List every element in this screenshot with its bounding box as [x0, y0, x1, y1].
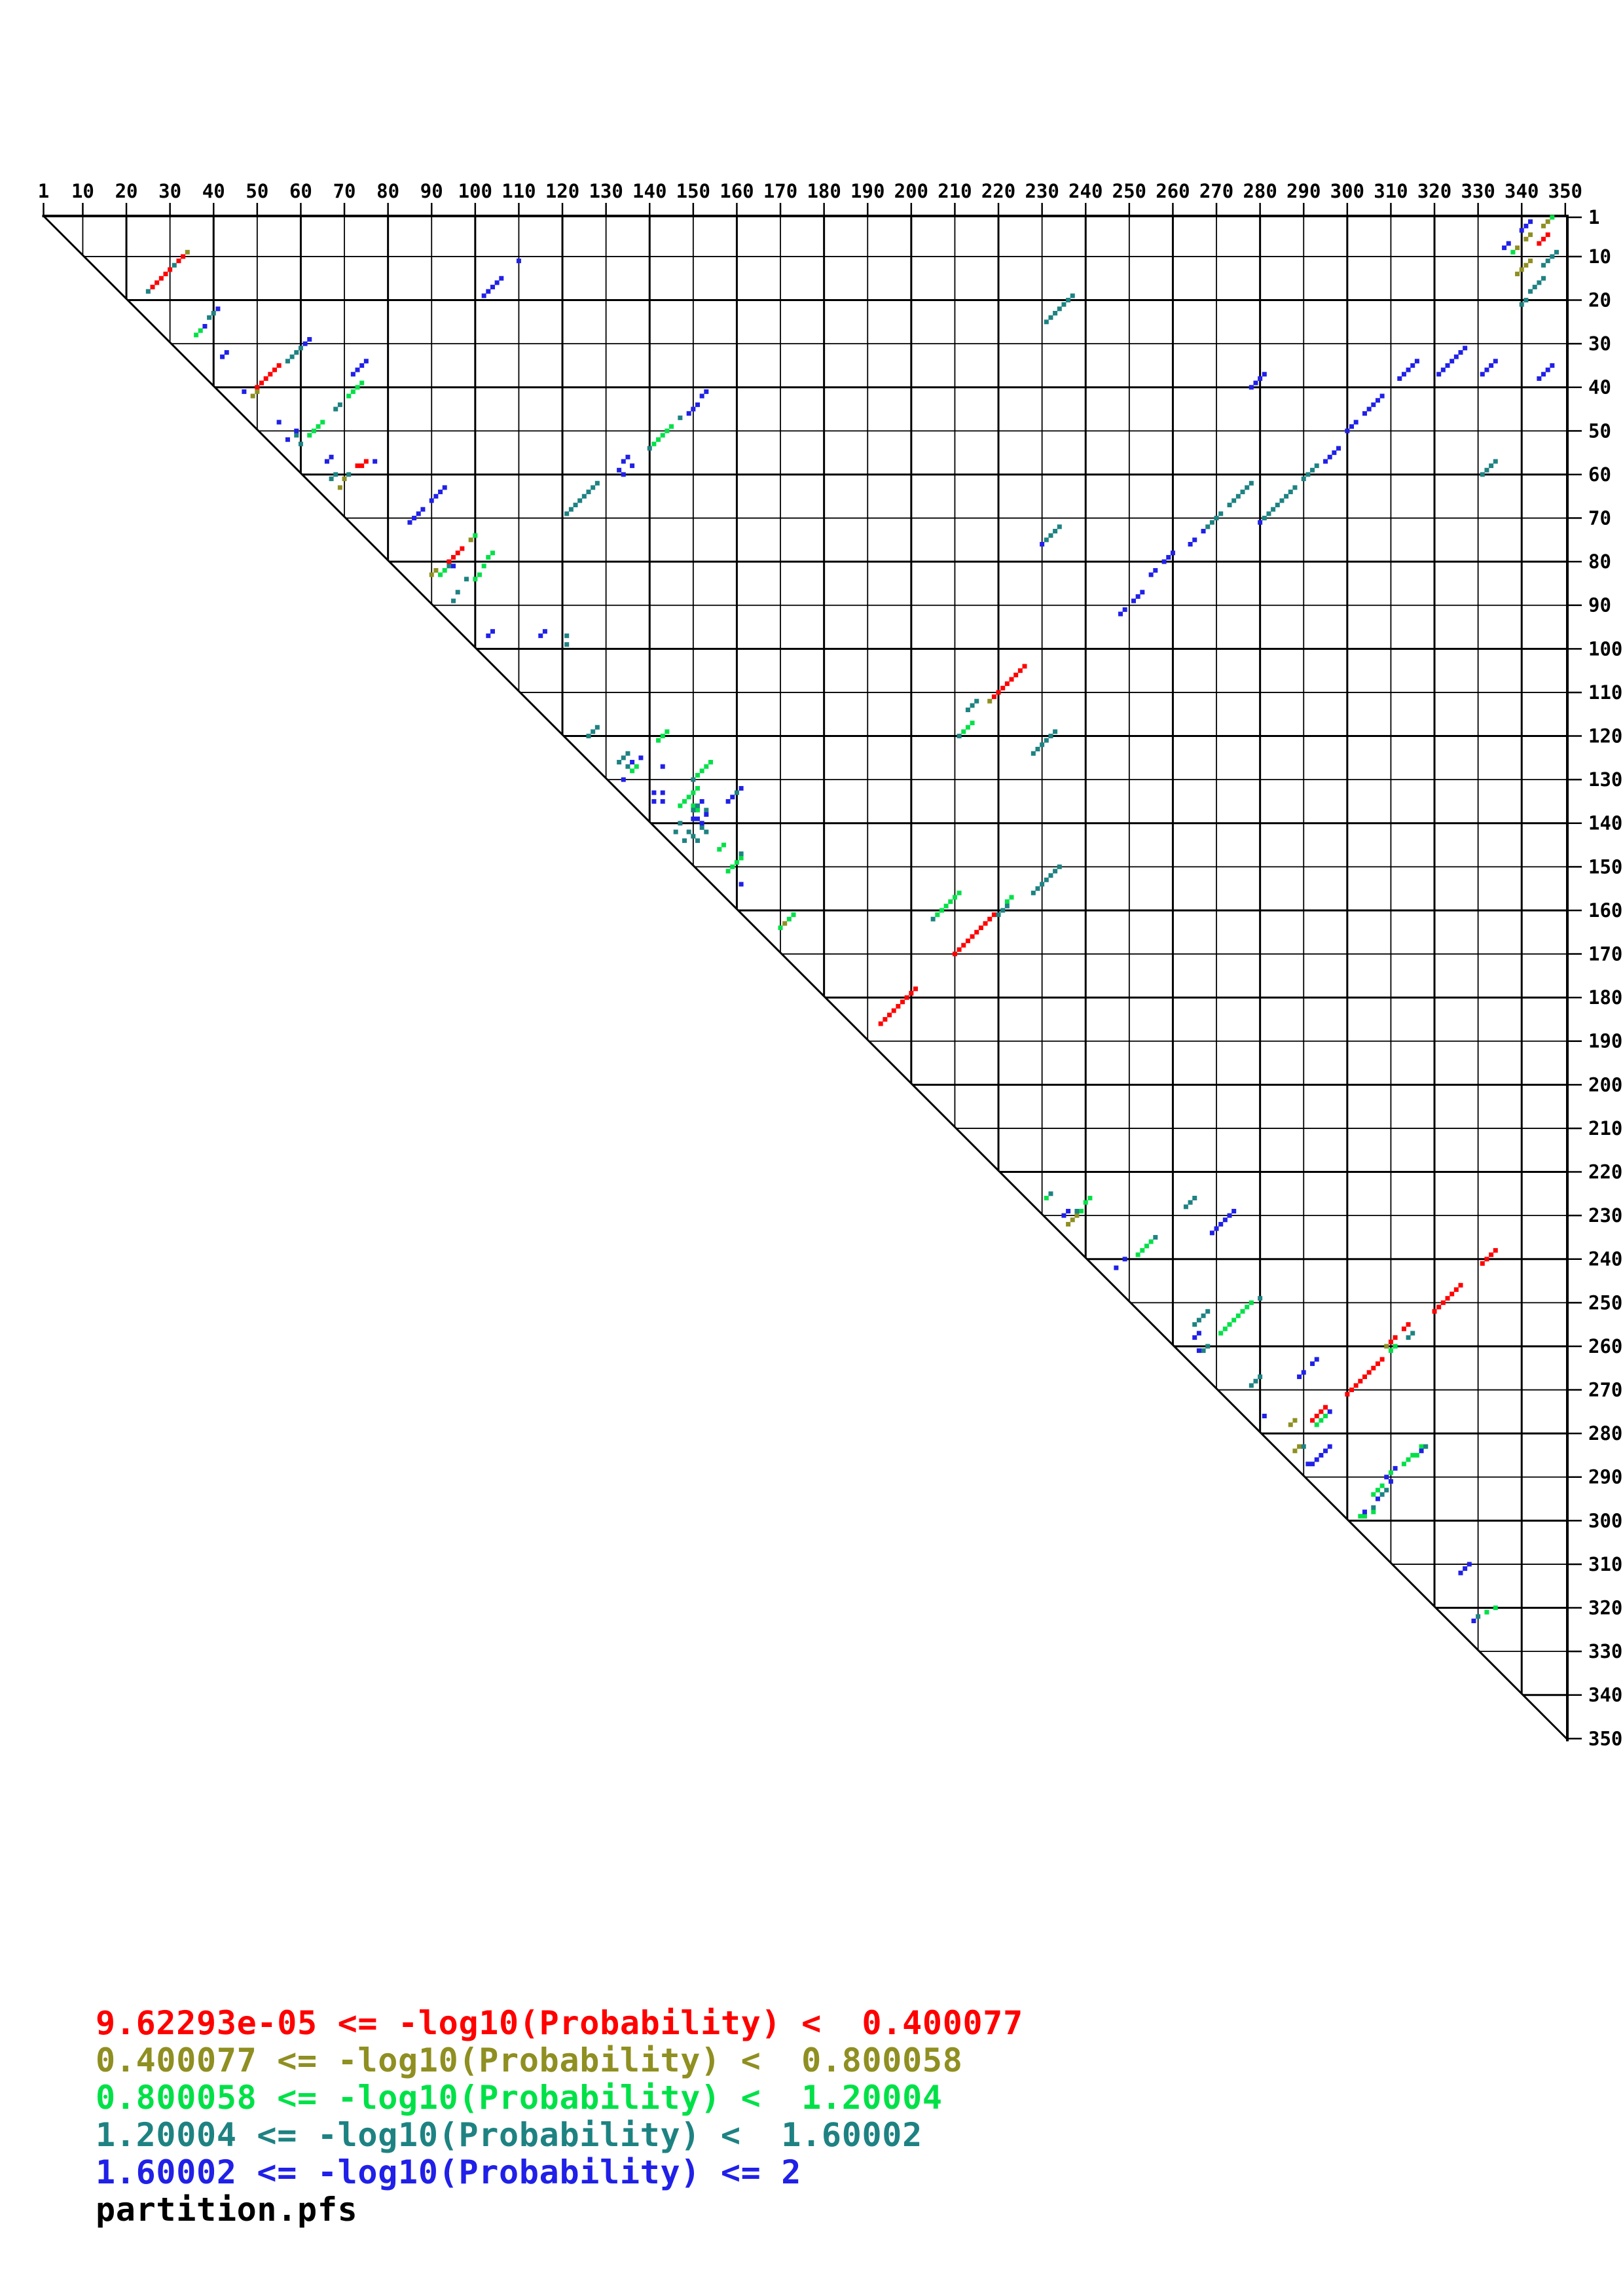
dot [1459, 350, 1463, 355]
dot [1489, 463, 1493, 468]
dot [1188, 542, 1193, 547]
dot [1201, 1348, 1206, 1353]
dot [1302, 476, 1306, 481]
dot [1376, 1361, 1380, 1366]
dot [909, 991, 913, 996]
dot [1484, 1257, 1489, 1261]
y-tick-label: 80 [1588, 550, 1611, 573]
dot [1040, 742, 1044, 747]
x-tick-label: 260 [1156, 180, 1190, 202]
dot [996, 912, 1001, 917]
dot [651, 799, 656, 804]
y-tick-label: 50 [1588, 420, 1611, 442]
dot [1415, 359, 1419, 363]
dot [665, 429, 669, 433]
dot [1061, 1213, 1066, 1218]
dot [966, 725, 970, 730]
dot [1541, 372, 1546, 376]
dot [1035, 747, 1040, 751]
dot [1419, 1448, 1424, 1453]
y-tick-label: 190 [1588, 1030, 1622, 1052]
dot [647, 446, 652, 450]
dot [1371, 1510, 1376, 1515]
dot [1546, 259, 1550, 263]
dot [1305, 472, 1310, 476]
dot [695, 804, 700, 808]
dot [730, 865, 735, 869]
dot [151, 285, 155, 289]
dot [1454, 1287, 1459, 1292]
x-tick-label: 310 [1374, 180, 1408, 202]
dot [1023, 664, 1027, 668]
dot [1048, 1191, 1053, 1196]
dot [1476, 1614, 1480, 1619]
y-tick-label: 40 [1588, 376, 1611, 399]
dot [1228, 1213, 1232, 1218]
x-tick-label: 40 [202, 180, 225, 202]
dot [1070, 1217, 1075, 1222]
dot [1533, 285, 1537, 289]
dot [1389, 1471, 1393, 1475]
dot [1000, 908, 1005, 912]
dot [1436, 372, 1441, 376]
dot [1162, 560, 1167, 564]
dot [1484, 468, 1489, 473]
x-tick-label: 190 [850, 180, 884, 202]
dot [957, 891, 962, 895]
y-tick-label: 250 [1588, 1291, 1622, 1314]
dot [1528, 219, 1533, 224]
y-tick-label: 350 [1588, 1727, 1622, 1749]
dot [443, 485, 447, 490]
dot [1241, 1309, 1245, 1314]
grid-lines [82, 216, 1567, 1695]
dot [1402, 1327, 1406, 1331]
dot [1310, 1462, 1315, 1466]
dot [1376, 398, 1380, 403]
dot [1406, 368, 1411, 372]
dot [329, 455, 334, 459]
dot [420, 507, 425, 512]
dot [687, 795, 691, 799]
dot [1515, 245, 1520, 250]
x-tick-label: 120 [545, 180, 579, 202]
dot [1044, 738, 1049, 743]
dot [1367, 407, 1372, 412]
dot [1389, 1479, 1393, 1484]
dot [469, 537, 473, 542]
dot [1328, 455, 1332, 459]
filename-label: partition.pfs [96, 2191, 1023, 2229]
dot [1528, 259, 1533, 263]
dot [464, 577, 469, 581]
dot [325, 459, 329, 463]
dot [905, 996, 909, 1000]
dot [1010, 895, 1014, 899]
dot [1123, 1257, 1127, 1261]
dot [656, 437, 661, 442]
dot [1048, 734, 1053, 738]
dot [1554, 250, 1559, 255]
y-tick-label: 1 [1588, 206, 1599, 228]
dot [577, 498, 582, 503]
dot [407, 520, 412, 525]
dot [695, 786, 700, 791]
dot [1253, 1379, 1258, 1384]
dot [1149, 573, 1154, 577]
dot [294, 433, 299, 438]
dot [146, 289, 151, 294]
dot [591, 485, 595, 490]
dot [1253, 381, 1258, 386]
y-tick-label: 270 [1588, 1379, 1622, 1401]
y-tick-label: 310 [1588, 1553, 1622, 1575]
dot [717, 847, 721, 852]
dot [1537, 241, 1541, 245]
dot [1231, 1318, 1236, 1322]
dot [691, 817, 695, 821]
dot [695, 403, 700, 407]
dot [194, 332, 198, 337]
x-tick-label: 340 [1504, 180, 1539, 202]
dot [1223, 1327, 1228, 1331]
dot [682, 799, 687, 804]
dot [1136, 1253, 1140, 1257]
dot [277, 420, 282, 425]
dot [700, 825, 704, 830]
dot [1523, 298, 1528, 302]
y-tick-label: 30 [1588, 332, 1611, 355]
dot [1393, 1344, 1398, 1348]
dot [1231, 498, 1236, 503]
dot [1389, 1340, 1393, 1344]
x-tick-label: 280 [1243, 180, 1277, 202]
dot [1315, 1414, 1319, 1418]
dot [1000, 686, 1005, 691]
x-tick-label: 100 [458, 180, 492, 202]
dot [678, 821, 682, 825]
dot [1205, 1344, 1210, 1348]
dot [1249, 481, 1254, 486]
y-tick-label: 180 [1588, 986, 1622, 1009]
dot [215, 306, 220, 311]
dot [700, 768, 704, 773]
dot [255, 389, 259, 394]
dot [1323, 1414, 1328, 1418]
x-tick-label: 240 [1068, 180, 1103, 202]
dot [1358, 1514, 1362, 1518]
dot [887, 1013, 892, 1017]
dot [1546, 219, 1550, 224]
dot [1362, 411, 1367, 416]
dot [970, 934, 975, 939]
dot [1436, 1305, 1441, 1310]
dot [1013, 673, 1018, 677]
dot [1275, 503, 1280, 507]
dot [1044, 319, 1049, 324]
dot [1048, 533, 1053, 538]
dot [1315, 1357, 1319, 1361]
dot [1048, 873, 1053, 878]
dot [1550, 254, 1554, 259]
dot [277, 363, 282, 368]
y-tick-label: 120 [1588, 725, 1622, 747]
dot [1305, 1462, 1310, 1466]
dot [1510, 250, 1515, 255]
dot [617, 468, 621, 473]
dot [1262, 516, 1267, 520]
dot [1459, 1571, 1463, 1575]
dot [1528, 289, 1533, 294]
dot [499, 276, 503, 281]
legend-line-3: 1.20004 <= -log10(Probability) < 1.60002 [96, 2117, 1023, 2154]
dot [1493, 1248, 1498, 1253]
dot [1319, 1409, 1323, 1414]
dot [1467, 1562, 1472, 1566]
dot [1459, 1283, 1463, 1287]
dot [1354, 1383, 1359, 1388]
dot [1397, 376, 1402, 381]
dot [1371, 1366, 1376, 1371]
dot [202, 324, 207, 329]
dot [1367, 1370, 1372, 1374]
dot [621, 459, 626, 463]
dot [704, 389, 708, 394]
dot [1136, 594, 1140, 599]
dot [1258, 520, 1262, 525]
dot [661, 433, 665, 438]
dot [329, 476, 334, 481]
dot [242, 389, 246, 394]
y-tick-label: 110 [1588, 681, 1622, 704]
legend-line-4: 1.60002 <= -log10(Probability) <= 2 [96, 2154, 1023, 2191]
x-tick-label: 300 [1330, 180, 1364, 202]
dot [1302, 1444, 1306, 1449]
dot [665, 729, 669, 734]
dot [1231, 1209, 1236, 1213]
dot [1380, 394, 1385, 399]
dot [264, 376, 268, 381]
dot [682, 838, 687, 843]
dot [1537, 280, 1541, 285]
dot [735, 791, 739, 795]
dot [1205, 1309, 1210, 1314]
dot [1284, 494, 1288, 499]
dot [356, 385, 360, 389]
dot [268, 372, 272, 376]
y-tick-label: 70 [1588, 507, 1611, 529]
x-tick-label: 150 [676, 180, 710, 202]
dot [630, 760, 634, 764]
dot [739, 852, 744, 856]
dot [1044, 537, 1049, 542]
dot [970, 703, 975, 708]
dot [700, 394, 704, 399]
dot [1249, 1383, 1254, 1388]
dot [1415, 1453, 1419, 1458]
dot [1188, 1200, 1193, 1205]
x-tick-label: 320 [1417, 180, 1451, 202]
y-tick-label: 330 [1588, 1640, 1622, 1662]
dot [1131, 599, 1136, 603]
dot [1192, 1196, 1197, 1200]
dot [1371, 1492, 1376, 1497]
dot [185, 250, 190, 255]
dot [1192, 537, 1197, 542]
dot [739, 786, 744, 791]
dot [1389, 1348, 1393, 1353]
dot [168, 267, 172, 272]
dot [1223, 1217, 1228, 1222]
dot [678, 804, 682, 808]
dot [1266, 511, 1271, 516]
dot [447, 560, 451, 564]
dot [1057, 524, 1062, 529]
dot [1480, 372, 1485, 376]
dot [1245, 485, 1249, 490]
dot [1546, 232, 1550, 237]
dot [1192, 1322, 1197, 1327]
dot [1354, 420, 1359, 425]
x-tick-label: 250 [1112, 180, 1146, 202]
dot [1384, 1488, 1389, 1492]
y-tick-label: 290 [1588, 1466, 1622, 1488]
dot [1493, 459, 1498, 463]
dot [429, 498, 434, 503]
dot [285, 437, 290, 442]
y-tick-label: 200 [1588, 1073, 1622, 1096]
dot [944, 904, 949, 908]
dot [211, 311, 216, 315]
dot-plot-canvas: 1102030405060708090100110120130140150160… [0, 0, 1623, 1806]
y-tick-label: 100 [1588, 637, 1622, 660]
dot [490, 629, 495, 634]
dot [359, 363, 364, 368]
dot [687, 830, 691, 834]
dot [987, 917, 992, 922]
dot [1446, 1296, 1450, 1300]
dot [1292, 1448, 1297, 1453]
dot [1053, 869, 1057, 874]
dot [587, 490, 591, 494]
dot [477, 573, 482, 577]
dot [517, 259, 521, 263]
dot [1550, 215, 1554, 220]
x-tick-label: 350 [1548, 180, 1582, 202]
dot [564, 511, 569, 516]
dot [482, 564, 486, 568]
dot [1393, 1335, 1398, 1340]
dot [621, 472, 626, 476]
dot [1228, 503, 1232, 507]
dot [1236, 494, 1241, 499]
dot [1506, 241, 1511, 245]
dot [700, 821, 704, 825]
dot [974, 699, 979, 704]
dot [582, 494, 587, 499]
dot [961, 943, 966, 948]
dot [251, 394, 255, 399]
dot [892, 1009, 896, 1013]
dot [1118, 612, 1123, 617]
dot [207, 315, 211, 320]
dot [704, 808, 708, 812]
dot [1410, 363, 1415, 368]
dot [595, 725, 600, 730]
dot [1066, 1222, 1070, 1227]
dot [617, 760, 621, 764]
dot [1454, 355, 1459, 359]
dot [1323, 1448, 1328, 1453]
dot [638, 755, 643, 760]
dot [900, 999, 905, 1004]
dot [957, 734, 962, 738]
dot [342, 476, 347, 481]
dot [364, 359, 369, 363]
x-tick-label: 200 [894, 180, 928, 202]
dot [163, 272, 168, 276]
dot [176, 259, 181, 263]
dot [661, 734, 665, 738]
dot [1384, 1475, 1389, 1479]
dot [1480, 1261, 1485, 1266]
y-tick-label: 130 [1588, 768, 1622, 791]
dot [1328, 1444, 1332, 1449]
dot-series-0 [151, 232, 1550, 1423]
dot [1441, 368, 1446, 372]
dot [1010, 677, 1014, 681]
dot [661, 799, 665, 804]
x-tick-label: 20 [115, 180, 138, 202]
dot [299, 346, 303, 350]
dot [333, 407, 338, 412]
x-tick-label: 180 [807, 180, 841, 202]
dot [1432, 1309, 1437, 1314]
dot [953, 895, 957, 899]
y-tick-label: 150 [1588, 855, 1622, 878]
dot [299, 442, 303, 446]
dot [486, 634, 490, 638]
dot [416, 511, 421, 516]
y-tick-label: 300 [1588, 1509, 1622, 1532]
dot [935, 912, 939, 917]
dot [987, 699, 992, 704]
dot [678, 416, 682, 420]
dot [490, 550, 495, 555]
dot [1258, 1374, 1262, 1379]
dot [1541, 224, 1546, 228]
dot [651, 791, 656, 795]
legend-line-1: 0.400077 <= -log10(Probability) < 0.8000… [96, 2042, 1023, 2079]
dot [574, 503, 578, 507]
x-tick-label: 110 [501, 180, 536, 202]
dot [1210, 520, 1214, 525]
axes: 1102030405060708090100110120130140150160… [38, 180, 1623, 1749]
dot [1048, 315, 1053, 320]
x-tick-label: 10 [71, 180, 94, 202]
x-tick-label: 170 [763, 180, 797, 202]
dot [538, 634, 543, 638]
dot [970, 721, 975, 725]
dot [1066, 298, 1070, 302]
dot [307, 337, 312, 342]
dot [346, 472, 351, 476]
dot [630, 768, 634, 773]
dot [1362, 1510, 1367, 1515]
dot [1197, 1318, 1201, 1322]
dot [1123, 607, 1127, 612]
dot [451, 599, 456, 603]
